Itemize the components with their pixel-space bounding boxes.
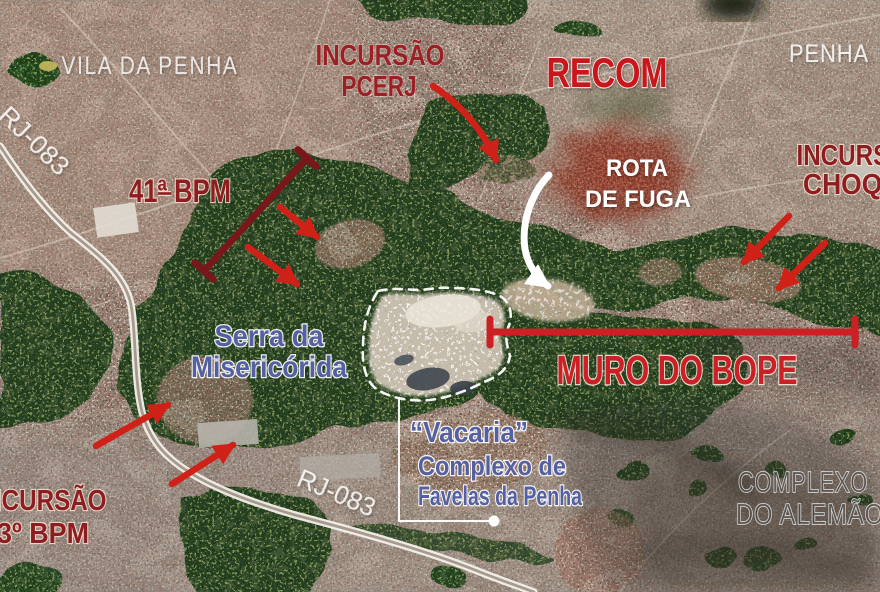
svg-text:3º BPM: 3º BPM xyxy=(0,518,89,550)
svg-text:Misericórida: Misericórida xyxy=(191,351,347,384)
svg-text:Favelas da Penha: Favelas da Penha xyxy=(418,481,583,511)
svg-text:DE FUGA: DE FUGA xyxy=(585,186,691,213)
svg-text:PENHA: PENHA xyxy=(789,40,869,68)
svg-text:RECOM: RECOM xyxy=(547,49,668,96)
svg-text:MURO DO BOPE: MURO DO BOPE xyxy=(557,347,798,393)
svg-text:PCERJ: PCERJ xyxy=(342,71,417,103)
svg-text:Complexo de: Complexo de xyxy=(418,451,566,481)
svg-text:INCURSÃO: INCURSÃO xyxy=(316,38,445,72)
svg-text:ROTA: ROTA xyxy=(606,155,668,182)
svg-text:VILA DA PENHA: VILA DA PENHA xyxy=(62,52,239,80)
svg-text:COMPLEXO: COMPLEXO xyxy=(738,467,868,499)
svg-text:CHOQUE: CHOQUE xyxy=(803,169,880,201)
svg-text:DO ALEMÃO: DO ALEMÃO xyxy=(736,497,880,531)
svg-text:INCURSÃO: INCURSÃO xyxy=(797,138,880,172)
svg-text:INCURSÃO: INCURSÃO xyxy=(0,483,107,517)
svg-text:41ª BPM: 41ª BPM xyxy=(129,173,231,209)
svg-text:Serra da: Serra da xyxy=(215,320,324,353)
svg-text:“Vacaria”: “Vacaria” xyxy=(410,417,528,449)
